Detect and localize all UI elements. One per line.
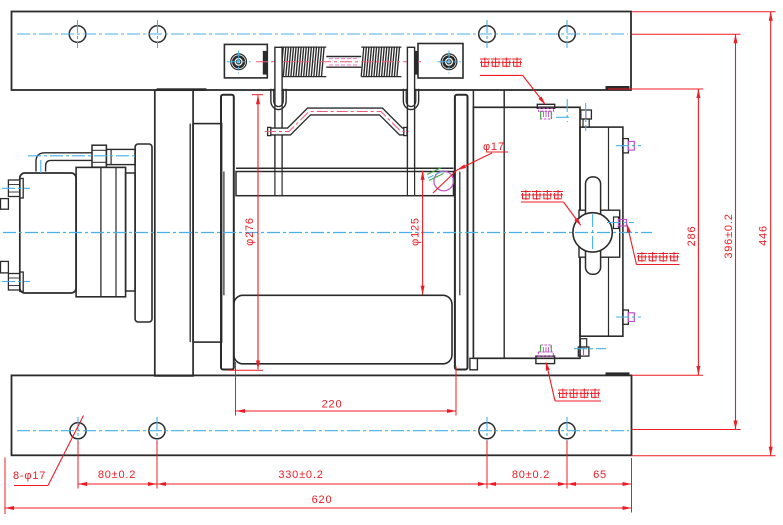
svg-text:φ125: φ125	[410, 217, 422, 246]
svg-text:620: 620	[312, 494, 333, 506]
svg-text:80±0.2: 80±0.2	[512, 469, 550, 481]
svg-text:446: 446	[758, 225, 770, 246]
svg-text:φ17: φ17	[483, 141, 505, 153]
svg-text:8-φ17: 8-φ17	[13, 470, 46, 482]
svg-text:286: 286	[686, 226, 698, 247]
svg-text:330±0.2: 330±0.2	[278, 469, 323, 481]
svg-text:396±0.2: 396±0.2	[723, 213, 735, 258]
svg-text:φ276: φ276	[244, 217, 256, 246]
svg-text:65: 65	[593, 469, 607, 481]
svg-text:220: 220	[322, 399, 343, 411]
svg-text:80±0.2: 80±0.2	[98, 469, 136, 481]
